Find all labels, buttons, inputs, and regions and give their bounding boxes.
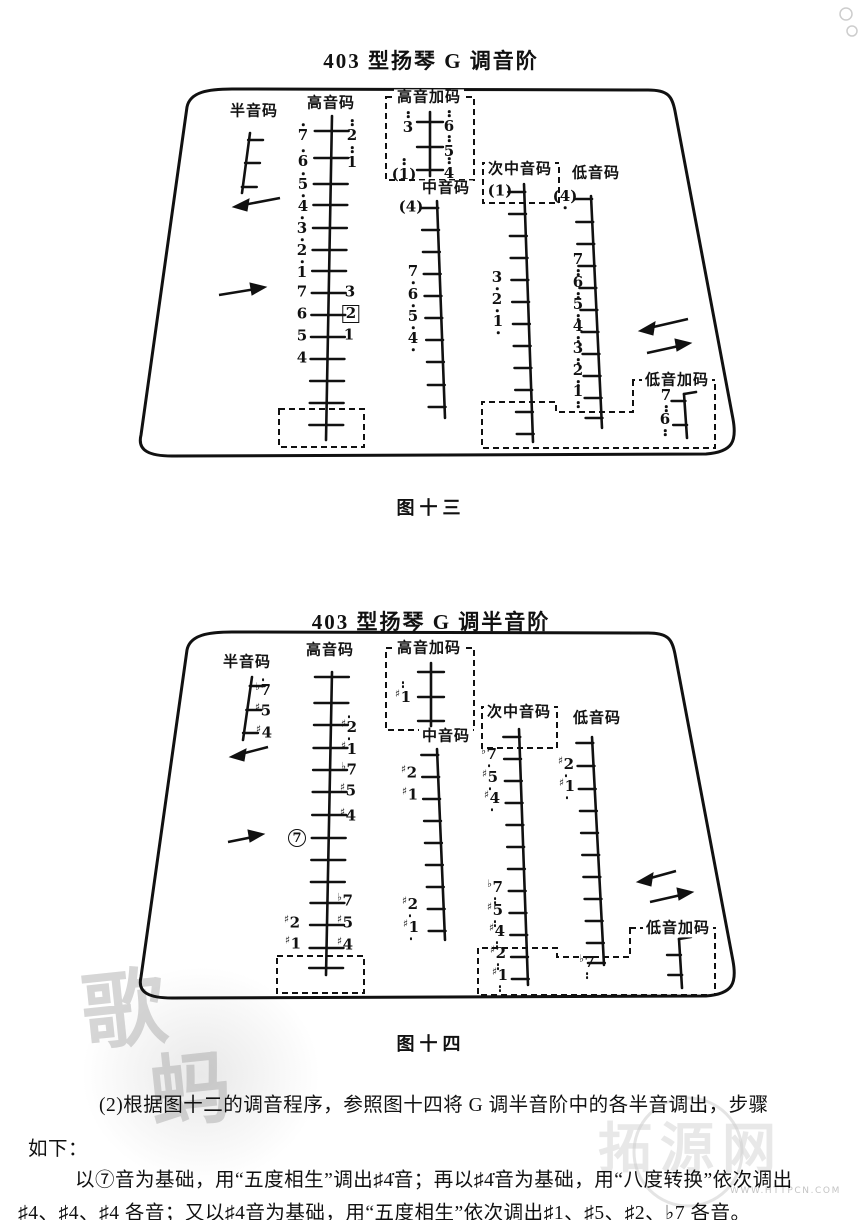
- jianpu-note-#5: ♯5: [482, 770, 498, 790]
- jianpu-note-5: 5: [298, 172, 308, 192]
- jianpu-note-#1: ♯1: [492, 968, 508, 992]
- bridge-label: 低音码: [570, 710, 624, 727]
- flat-sign: ♭: [341, 762, 346, 773]
- bridge-segment: [679, 939, 682, 988]
- bridge-segment: [326, 116, 332, 440]
- bridge-segment: [326, 672, 332, 975]
- sharp-sign: ♯: [285, 936, 290, 947]
- jianpu-note-#5: ♯5: [337, 916, 353, 931]
- bridge-segment: [591, 196, 602, 428]
- jianpu-note-#2: ♯2: [402, 897, 418, 917]
- jianpu-note-2: 2: [342, 305, 359, 323]
- jianpu-note-#4: ♯4: [484, 791, 500, 811]
- jianpu-note-6: 6: [297, 307, 307, 322]
- bridge-lines: [242, 112, 696, 988]
- sharp-sign: ♯: [402, 896, 407, 907]
- sharp-sign: ♯: [489, 923, 494, 934]
- sharp-sign: ♯: [395, 689, 400, 700]
- body-text-line: 以⑦音为基础，用“五度相生”调出♯4̇音；再以♯4̇音为基础，用“八度转换”依次…: [75, 1169, 793, 1193]
- bridge-label: 高音加码: [394, 640, 464, 657]
- flat-sign: ♭: [255, 682, 260, 693]
- sharp-sign: ♯: [255, 703, 260, 714]
- bridge-label: 低音加码: [642, 372, 712, 389]
- corner-watermark: [634, 8, 857, 1206]
- figure14-title: 403 型扬琴 G 调半音阶: [0, 611, 862, 634]
- jianpu-note-6: 6: [444, 110, 454, 134]
- jianpu-note-b7: ♭7: [337, 894, 353, 909]
- jianpu-note-b7: ♭7: [341, 763, 357, 778]
- jianpu-note-4: 4: [444, 157, 454, 181]
- jianpu-note-#4: ♯4: [337, 938, 353, 953]
- jianpu-note-4: (4): [553, 189, 578, 209]
- bridge-segment: [524, 184, 533, 442]
- yangqin-body-outline-fig13: [140, 89, 734, 456]
- jianpu-note-1: 1: [297, 260, 307, 280]
- jianpu-note-2: 2: [492, 292, 502, 312]
- jianpu-note-3: 3: [403, 111, 413, 135]
- sharp-sign: ♯: [403, 919, 408, 930]
- sharp-sign: ♯: [341, 719, 346, 730]
- sharp-sign: ♯: [256, 725, 261, 736]
- jianpu-note-4: (4): [399, 200, 424, 215]
- figure13-title: 403 型扬琴 G 调音阶: [0, 50, 862, 73]
- jianpu-note-1: (1): [488, 184, 513, 199]
- jianpu-note-#2: ♯2: [341, 715, 357, 735]
- flat-sign: ♭: [579, 954, 584, 965]
- bridge-segment: [519, 729, 528, 985]
- figure13-caption: 图十三: [0, 494, 862, 520]
- mallet-direction-arrows-fig13: [219, 198, 691, 353]
- jianpu-note-3: 3: [345, 285, 355, 300]
- jianpu-note-6: 6: [408, 287, 418, 307]
- bridge-label: 中音码: [419, 180, 473, 197]
- bridge-label: 中音码: [419, 728, 473, 745]
- jianpu-note-#1: ♯1: [403, 920, 419, 940]
- jianpu-note-3: 3: [492, 270, 502, 290]
- sharp-sign: ♯: [337, 937, 342, 948]
- jianpu-note-#1: ♯1: [402, 788, 418, 803]
- sharp-sign: ♯: [558, 756, 563, 767]
- jianpu-note-7: 7: [661, 388, 671, 412]
- jianpu-note-b7: ♭7: [481, 747, 497, 767]
- sharp-sign: ♯: [284, 915, 289, 926]
- jianpu-note-#2: ♯2: [558, 757, 574, 777]
- sharp-sign: ♯: [401, 765, 406, 776]
- sharp-sign: ♯: [340, 783, 345, 794]
- jianpu-note-4: 4: [298, 194, 308, 214]
- jianpu-note-1: 1: [347, 146, 357, 170]
- jianpu-note-3: 3: [297, 216, 307, 236]
- sharp-sign: ♯: [482, 769, 487, 780]
- flat-sign: ♭: [487, 879, 492, 890]
- jianpu-note-#1: ♯1: [559, 779, 575, 799]
- bridge-label: 高音码: [303, 642, 357, 659]
- sharp-sign: ♯: [484, 790, 489, 801]
- jianpu-note-1: 1: [344, 328, 354, 343]
- jianpu-note-1: (1): [392, 158, 417, 182]
- bridge-label: 低音加码: [643, 920, 713, 937]
- jianpu-note-4: 4: [297, 351, 307, 366]
- sharp-sign: ♯: [492, 967, 497, 978]
- sharp-sign: ♯: [402, 787, 407, 798]
- jianpu-note-6: 6: [660, 412, 670, 436]
- sharp-sign: ♯: [340, 808, 345, 819]
- flat-sign: ♭: [481, 746, 486, 757]
- jianpu-note-7: 7: [408, 264, 418, 284]
- jianpu-note-#4: ♯4: [256, 726, 272, 741]
- scanned-page: 歌 蚂 拓源网 WWW.HTTPCN.COM: [0, 0, 862, 1220]
- sharp-sign: ♯: [490, 945, 495, 956]
- bridge-label: 半音码: [227, 103, 281, 120]
- sharp-sign: ♯: [559, 778, 564, 789]
- bridge-segment: [684, 392, 696, 394]
- jianpu-note-2: 2: [347, 119, 357, 143]
- jianpu-note-#2: ♯2: [284, 916, 300, 931]
- bridge-label: 低音码: [569, 165, 623, 182]
- jianpu-note-#1: ♯1: [341, 737, 357, 757]
- jianpu-note-b7: ♭7: [579, 955, 595, 979]
- jianpu-note-7: 7: [297, 285, 307, 300]
- jianpu-note-7: 7: [288, 829, 306, 847]
- sharp-sign: ♯: [487, 902, 492, 913]
- body-text-line: (2)根据图十二的调音程序，参照图十四将 G 调半音阶中的各半音调出，步骤: [99, 1094, 769, 1118]
- bridge-segment: [592, 737, 604, 965]
- bridge-label: 高音加码: [394, 89, 464, 106]
- jianpu-note-#5: ♯5: [255, 704, 271, 719]
- jianpu-note-#5: ♯5: [340, 784, 356, 799]
- jianpu-note-#2: ♯2: [401, 766, 417, 781]
- bridge-label: 次中音码: [484, 704, 554, 721]
- figure14-caption: 图十四: [0, 1030, 862, 1056]
- jianpu-note-b7: ♭7: [255, 678, 271, 698]
- jianpu-note-7: 7: [298, 123, 308, 143]
- mallet-direction-arrows-fig14: [228, 747, 693, 902]
- jianpu-note-1: 1: [573, 384, 583, 408]
- jianpu-note-6: 6: [298, 149, 308, 169]
- jianpu-note-#1: ♯1: [285, 937, 301, 952]
- bridge-label: 高音码: [304, 95, 358, 112]
- jianpu-note-1: 1: [493, 314, 503, 334]
- jianpu-note-4: 4: [408, 331, 418, 351]
- sharp-sign: ♯: [337, 915, 342, 926]
- bridge-label: 次中音码: [485, 161, 555, 178]
- bridge-label: 半音码: [220, 654, 274, 671]
- flat-sign: ♭: [337, 893, 342, 904]
- yangqin-body-outline-fig14: [140, 632, 734, 998]
- body-text-line-clipped: ♯4、♯4̣、♯4̤ 各音；又以♯4音为基础，用“五度相生”依次调出♯1、♯5、…: [18, 1202, 751, 1220]
- jianpu-note-#4: ♯4: [340, 809, 356, 824]
- jianpu-note-2: 2: [297, 238, 307, 258]
- jianpu-note-5: 5: [408, 309, 418, 329]
- jianpu-note-#1: ♯1: [395, 681, 411, 705]
- jianpu-note-5: 5: [444, 135, 454, 159]
- body-text-line: 如下：: [28, 1138, 88, 1162]
- sharp-sign: ♯: [341, 741, 346, 752]
- jianpu-note-5: 5: [297, 329, 307, 344]
